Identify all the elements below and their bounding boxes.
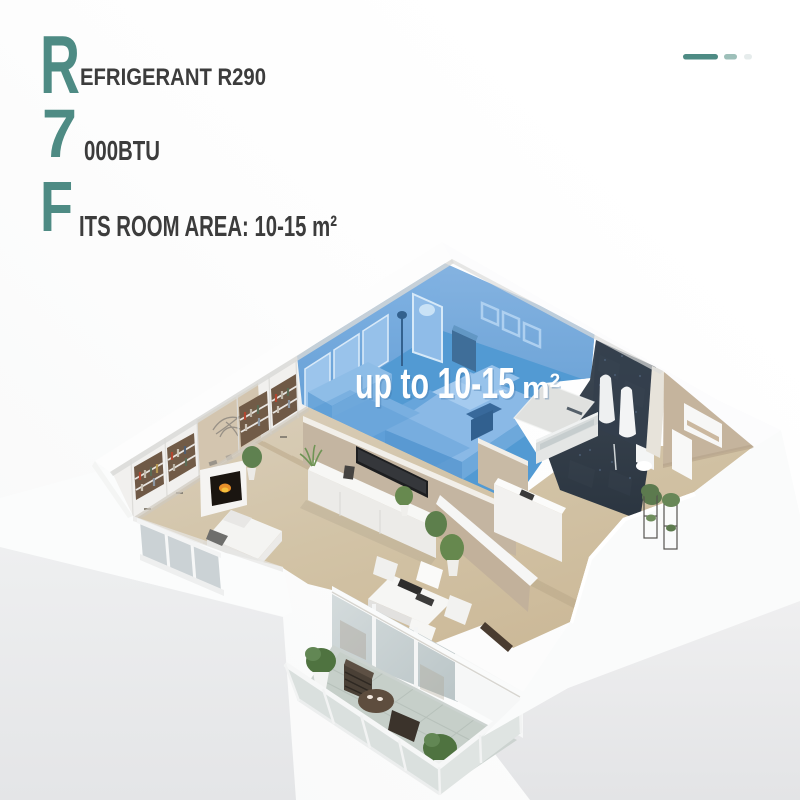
svg-text:up to 10-15: up to 10-15 [355, 359, 515, 408]
svg-text:F: F [40, 168, 73, 247]
svg-text:000BTU: 000BTU [84, 135, 160, 166]
svg-text:EFRIGERANT R290: EFRIGERANT R290 [80, 64, 266, 91]
svg-text:7: 7 [42, 95, 77, 172]
svg-text:ITS ROOM AREA: 10-15 m²: ITS ROOM AREA: 10-15 m² [79, 211, 337, 243]
